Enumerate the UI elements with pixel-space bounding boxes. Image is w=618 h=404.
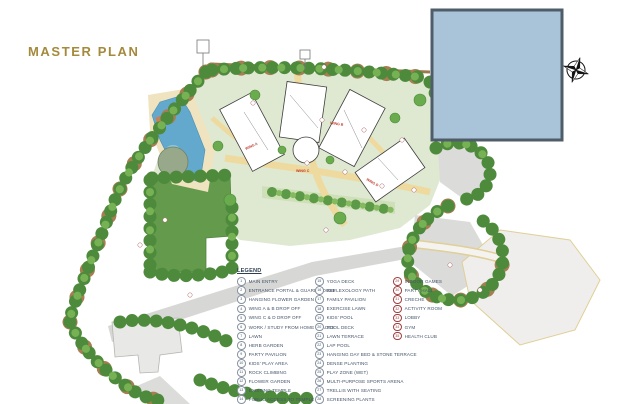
legend-item-label: ACTIVITY ROOM <box>405 306 442 311</box>
legend-item-number: 32 <box>393 305 402 314</box>
legend-item-number: 16 <box>315 286 324 295</box>
legend-item-number: 22 <box>315 341 324 350</box>
legend-item: 4 WING A & B DROP OFF <box>237 304 315 313</box>
legend-item-number: 15 <box>315 277 324 286</box>
legend-item-number: 14 <box>237 395 246 404</box>
legend-item-number: 10 <box>237 359 246 368</box>
legend-item-label: REFLEXOLOGY PATH <box>327 288 376 293</box>
legend-column-1: 1 MAIN ENTRY 2 ENTRANCE PORTAL & GUARD H… <box>237 277 315 404</box>
legend-item: 25 PLAY ZONE (WET) <box>315 368 393 377</box>
legend-item: 33 LOBBY <box>393 313 471 322</box>
legend-item: 35 HEALTH CLUB <box>393 332 471 341</box>
legend-item-number: 1 <box>237 277 246 286</box>
legend-item-label: PLAY ZONE (WET) <box>327 370 368 375</box>
legend-item-number: 18 <box>315 305 324 314</box>
legend-item-number: 25 <box>315 368 324 377</box>
legend-item-number: 31 <box>393 295 402 304</box>
legend-item: 3 HANGING FLOWER GARDEN <box>237 295 315 304</box>
legend-item-label: HERB GARDEN <box>249 343 284 348</box>
legend-item-label: HANGING FLOWER GARDEN <box>249 297 314 302</box>
legend-item: 5 WING C & D DROP OFF <box>237 313 315 322</box>
wing-b-building <box>279 81 326 142</box>
legend-item-label: WING A & B DROP OFF <box>249 306 301 311</box>
legend-item-number: 20 <box>315 323 324 332</box>
legend-item-label: HEALTH CLUB <box>405 334 437 339</box>
legend-item-label: DENSE PLANTING <box>327 361 368 366</box>
legend-item-number: 2 <box>237 286 246 295</box>
legend-item-label: SCREENING PLANTS <box>327 397 375 402</box>
legend-columns: 1 MAIN ENTRY 2 ENTRANCE PORTAL & GUARD H… <box>237 277 487 404</box>
legend-item: 30 PARTY HALL <box>393 286 471 295</box>
legend-column-3: 29 INDOOR GAMES 30 PARTY HALL 31 CRECHE <box>393 277 471 404</box>
legend-item-number: 11 <box>237 368 246 377</box>
legend-item: 2 ENTRANCE PORTAL & GUARD HOUSE <box>237 286 315 295</box>
legend-item-number: 28 <box>315 395 324 404</box>
legend-item-number: 3 <box>237 295 246 304</box>
legend-item: 19 KIDS' POOL <box>315 313 393 322</box>
legend-item-label: LAWN TERRACE <box>327 334 364 339</box>
legend-item: 8 HERB GARDEN <box>237 341 315 350</box>
legend-item-number: 19 <box>315 314 324 323</box>
legend-item-label: EXERCISE LAWN <box>327 306 366 311</box>
legend-item: 7 LAWN <box>237 332 315 341</box>
legend-item: 26 MULTI-PURPOSE SPORTS ARENA <box>315 377 393 386</box>
legend-item: 14 PUBLIC ACCESS TO TEMPLE <box>237 395 315 404</box>
legend-item-label: CRECHE <box>405 297 425 302</box>
legend-item: 29 INDOOR GAMES <box>393 277 471 286</box>
legend-item-number: 13 <box>237 386 246 395</box>
legend-item: 22 LAP POOL <box>315 341 393 350</box>
legend-item: 10 KIDS' PLAY AREA <box>237 359 315 368</box>
main-entry-flag <box>197 40 209 53</box>
legend-item-number: 24 <box>315 359 324 368</box>
legend-item-label: PARTY PAVILION <box>249 352 287 357</box>
legend-item: 27 TRELLIS WITH SEATING <box>315 386 393 395</box>
wing-c-label: WING C <box>296 169 310 173</box>
legend-item: 6 WORK / STUDY FROM HOME SPACES <box>237 322 315 331</box>
legend-item: 9 PARTY PAVILION <box>237 350 315 359</box>
legend-item: 1 MAIN ENTRY <box>237 277 315 286</box>
legend-item: 16 REFLEXOLOGY PATH <box>315 286 393 295</box>
legend-item-number: 26 <box>315 377 324 386</box>
legend-item-number: 34 <box>393 323 402 332</box>
legend-item-number: 7 <box>237 332 246 341</box>
legend-item: 15 YOGA DECK <box>315 277 393 286</box>
legend-item-number: 21 <box>315 332 324 341</box>
legend-item: 11 ROCK CLIMBING <box>237 368 315 377</box>
legend-item-label: EXISTING TEMPLE <box>249 388 292 393</box>
legend-item-number: 6 <box>237 323 246 332</box>
legend-item-number: 33 <box>393 314 402 323</box>
legend-item-number: 17 <box>315 295 324 304</box>
legend-item: 31 CRECHE <box>393 295 471 304</box>
legend-item-label: PARTY HALL <box>405 288 434 293</box>
legend-item-number: 9 <box>237 350 246 359</box>
legend-item-label: TRELLIS WITH SEATING <box>327 388 382 393</box>
legend-item-number: 23 <box>315 350 324 359</box>
central-core <box>293 137 319 163</box>
legend-item-label: LAP POOL <box>327 343 350 348</box>
legend-item-number: 35 <box>393 332 402 341</box>
legend-item-number: 5 <box>237 314 246 323</box>
legend-item-label: FLOWER GARDEN <box>249 379 291 384</box>
legend-item: 17 FAMILY PAVILION <box>315 295 393 304</box>
legend-item: 23 HANGING DAY BED & STONE TERRACE <box>315 350 393 359</box>
legend-item-number: 8 <box>237 341 246 350</box>
master-plan-page: WING A WING B WING C WING D <box>0 0 618 404</box>
secondary-flag <box>300 50 310 59</box>
legend-item: 20 POOL DECK <box>315 322 393 331</box>
legend-item-label: LAWN <box>249 334 263 339</box>
legend-item-label: FAMILY PAVILION <box>327 297 366 302</box>
blue-overlay-panel <box>432 10 562 140</box>
legend-item-label: POOL DECK <box>327 325 355 330</box>
legend-item: 18 EXERCISE LAWN <box>315 304 393 313</box>
legend: LEGEND 1 MAIN ENTRY 2 ENTRANCE PORTAL & … <box>237 259 487 404</box>
legend-item: 34 GYM <box>393 322 471 331</box>
legend-title: LEGEND <box>237 268 262 274</box>
legend-item-label: YOGA DECK <box>327 279 355 284</box>
legend-item-label: PUBLIC ACCESS TO TEMPLE <box>249 397 315 402</box>
legend-item-number: 12 <box>237 377 246 386</box>
legend-item: 13 EXISTING TEMPLE <box>237 386 315 395</box>
legend-item-number: 4 <box>237 305 246 314</box>
legend-item-label: KIDS' POOL <box>327 315 354 320</box>
legend-item: 28 SCREENING PLANTS <box>315 395 393 404</box>
legend-item-label: KIDS' PLAY AREA <box>249 361 288 366</box>
legend-item-label: GYM <box>405 325 416 330</box>
legend-item-label: LOBBY <box>405 315 421 320</box>
legend-item-label: INDOOR GAMES <box>405 279 442 284</box>
compass-rose-icon <box>560 54 593 87</box>
legend-item-label: MAIN ENTRY <box>249 279 278 284</box>
legend-item-number: 30 <box>393 286 402 295</box>
legend-item: 21 LAWN TERRACE <box>315 332 393 341</box>
legend-item-label: ROCK CLIMBING <box>249 370 287 375</box>
legend-item: 32 ACTIVITY ROOM <box>393 304 471 313</box>
legend-item-number: 29 <box>393 277 402 286</box>
legend-item-number: 27 <box>315 386 324 395</box>
legend-column-2: 15 YOGA DECK 16 REFLEXOLOGY PATH 17 FAMI… <box>315 277 393 404</box>
legend-item-label: WING C & D DROP OFF <box>249 315 302 320</box>
legend-item: 24 DENSE PLANTING <box>315 359 393 368</box>
page-title: MASTER PLAN <box>28 44 140 59</box>
legend-item: 12 FLOWER GARDEN <box>237 377 315 386</box>
